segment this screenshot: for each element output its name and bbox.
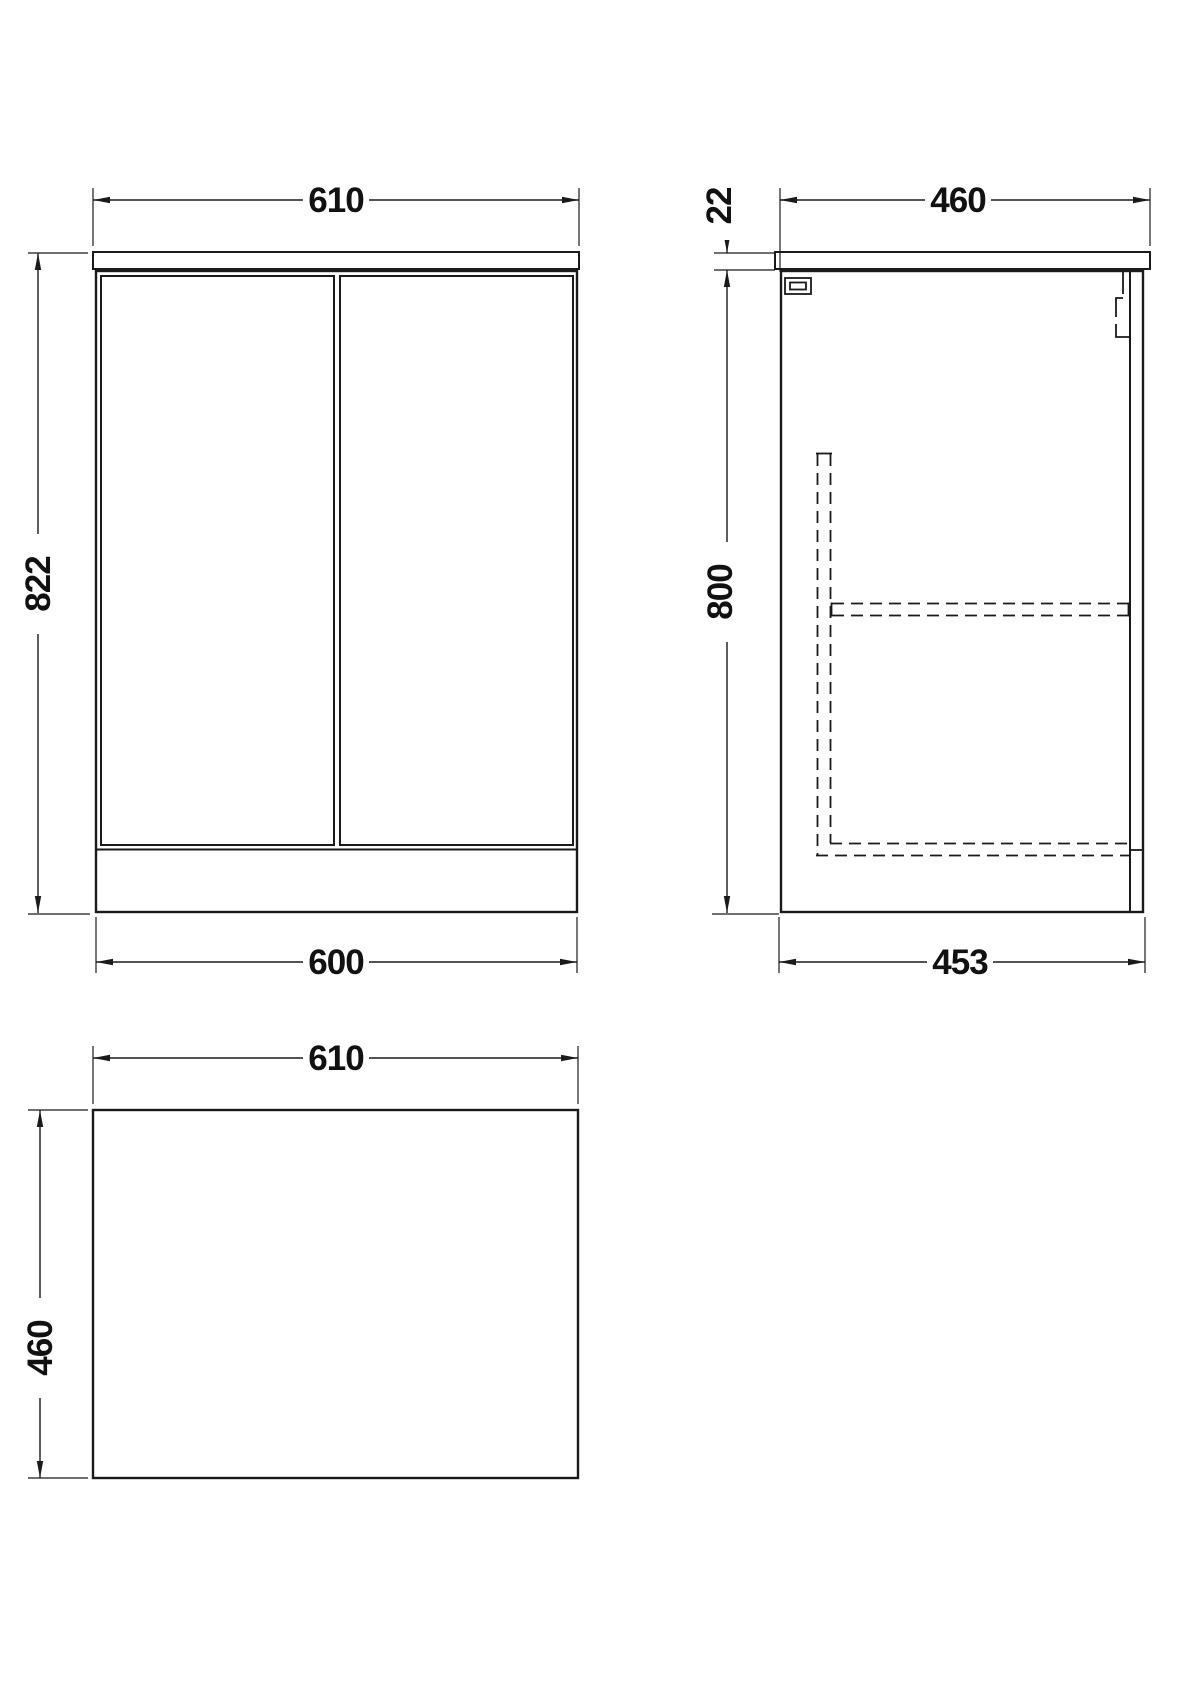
dim-front-width-bottom: 600: [96, 917, 577, 982]
dim-front-width-top: 610: [93, 181, 579, 246]
front-worktop: [93, 252, 579, 269]
front-right-door: [340, 276, 573, 845]
dim-side-depth-bottom: 453: [779, 917, 1145, 982]
dim-label-plan-depth: 460: [21, 1320, 60, 1376]
front-cabinet-body: [96, 271, 577, 912]
dim-label-front-width-top: 610: [308, 181, 364, 220]
dim-label-side-height: 800: [701, 564, 740, 620]
dim-side-worktop-thickness: 22: [700, 172, 775, 270]
side-view: 460 22 800 453: [700, 172, 1150, 982]
dim-label-front-width-bottom: 600: [308, 943, 364, 982]
side-worktop: [775, 252, 1150, 269]
side-hidden-internal-lines: [816, 454, 1143, 857]
side-cabinet-body: [781, 271, 1143, 912]
side-fixing-bracket: [1116, 272, 1130, 337]
dim-side-depth-top: 460: [780, 181, 1150, 272]
dim-front-height: 822: [19, 253, 90, 914]
dim-label-front-height: 822: [19, 556, 58, 612]
dim-label-side-worktop-thickness: 22: [700, 187, 739, 224]
dim-label-side-depth-top: 460: [930, 181, 986, 220]
plan-worktop-outline: [93, 1110, 578, 1478]
vanity-unit-technical-drawing: 610 822 600: [0, 0, 1190, 1684]
dim-plan-depth: 460: [21, 1110, 88, 1478]
side-handle-detail: [785, 278, 811, 294]
dim-plan-width: 610: [93, 1039, 578, 1104]
dim-label-side-depth-bottom: 453: [932, 943, 988, 982]
dim-side-height: 800: [701, 270, 779, 914]
drawing-sheet: 610 822 600: [0, 0, 1190, 1684]
plan-view: 610 460: [21, 1039, 578, 1478]
front-left-door: [101, 276, 334, 845]
front-view: 610 822 600: [19, 181, 579, 982]
dim-label-plan-width: 610: [308, 1039, 364, 1078]
